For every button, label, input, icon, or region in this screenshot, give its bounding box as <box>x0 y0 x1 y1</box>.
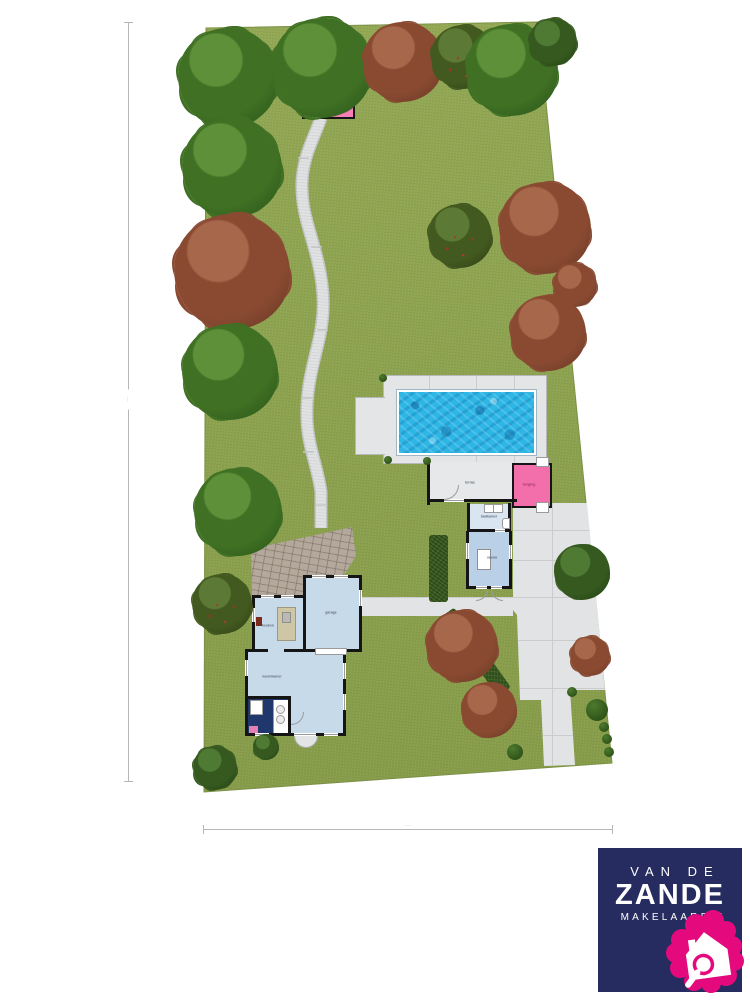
dimension-tick <box>203 825 204 834</box>
green-tree <box>182 118 282 218</box>
bush <box>604 747 614 757</box>
dimension-line-bottom <box>203 829 613 830</box>
counter-sink <box>276 705 285 714</box>
living-window <box>343 694 346 710</box>
kitchen-window <box>252 608 255 622</box>
dimension-tick <box>124 22 133 23</box>
kitchen-window <box>281 595 294 598</box>
kitchen-label: keuken <box>258 624 278 628</box>
pink-mat <box>249 726 258 733</box>
pool-deck-notch <box>355 397 385 455</box>
island-sink <box>282 612 291 623</box>
sauna-west-wall <box>466 531 469 589</box>
kitchenette-top-wall <box>248 696 290 699</box>
kitchen-north-wall <box>252 595 305 598</box>
sauna-label: sauna <box>482 556 502 560</box>
garage-west-wall <box>303 575 306 652</box>
logo-house-splat-icon <box>664 910 744 994</box>
living-label: woonkamer <box>262 675 282 679</box>
greenred-tree <box>192 574 252 634</box>
sauna-south-wall <box>466 586 512 589</box>
bush <box>599 722 609 732</box>
bush <box>384 456 392 464</box>
dimension-tick <box>612 825 613 834</box>
storage-window <box>536 457 549 467</box>
darkgreen-tree <box>529 18 577 66</box>
kitchen-living-opening <box>268 649 284 652</box>
garage-east-wall <box>359 575 362 652</box>
terrace-south-wall <box>427 499 517 502</box>
red-tree <box>461 682 517 738</box>
green-tree <box>272 18 372 118</box>
bush <box>602 734 612 744</box>
kitchen-window <box>261 595 274 598</box>
logo-line-van-de: VAN DE <box>598 864 747 879</box>
sauna-door <box>495 529 505 532</box>
green-tree <box>182 324 278 420</box>
bathroom-west-wall <box>467 503 470 531</box>
site-plan-canvas: terras berging badkamer sauna keuken gar… <box>0 0 750 1000</box>
darkgreen-tree <box>193 746 237 790</box>
red-tree <box>570 636 610 676</box>
garage-window <box>359 590 362 606</box>
storage-window <box>536 502 549 513</box>
driveway-joint <box>552 503 553 767</box>
sauna-window <box>466 543 469 559</box>
garage-window <box>312 575 326 578</box>
red-tree <box>510 295 586 371</box>
swimming-pool <box>397 390 536 455</box>
storage-label: berging <box>519 483 539 487</box>
red-tree <box>499 182 591 274</box>
bathroom-label: badkamer <box>479 515 499 519</box>
dimension-tick <box>124 781 133 782</box>
agency-logo: VAN DE ZANDE MAKELAARDIJ <box>598 848 742 992</box>
sauna-east-wall <box>509 531 512 589</box>
kitchen-west-wall <box>252 595 255 652</box>
living-window <box>324 733 338 736</box>
kitchen-fixture <box>250 700 263 715</box>
bush <box>586 699 608 721</box>
red-tree <box>426 610 498 682</box>
sauna-window <box>509 545 512 559</box>
terrace-label: terras <box>460 481 480 485</box>
bush <box>423 457 431 465</box>
garage-floor <box>306 578 360 651</box>
living-window <box>343 663 346 679</box>
sink <box>493 504 503 513</box>
garage-label: garage <box>321 611 341 615</box>
counter-sink <box>276 715 285 724</box>
green-tree <box>194 468 282 556</box>
toilet <box>502 518 510 529</box>
green-tree <box>178 28 278 128</box>
dimension-label-left: ····· <box>126 390 130 410</box>
bush <box>379 374 387 382</box>
darkgreen-tree <box>253 734 279 760</box>
living-window <box>245 660 248 676</box>
red-tree <box>174 214 290 330</box>
darkgreen-tree <box>554 544 610 600</box>
hedge-vertical <box>429 535 448 602</box>
garage-window <box>334 575 348 578</box>
driveway-joint <box>513 688 608 689</box>
bush <box>567 687 577 697</box>
sauna-bench <box>477 549 491 570</box>
logo-line-zande: ZANDE <box>598 879 742 912</box>
dimension-label-bottom: ····· <box>398 824 418 828</box>
garage-door <box>315 648 347 655</box>
bush <box>507 744 523 760</box>
greenred-tree <box>428 204 492 268</box>
